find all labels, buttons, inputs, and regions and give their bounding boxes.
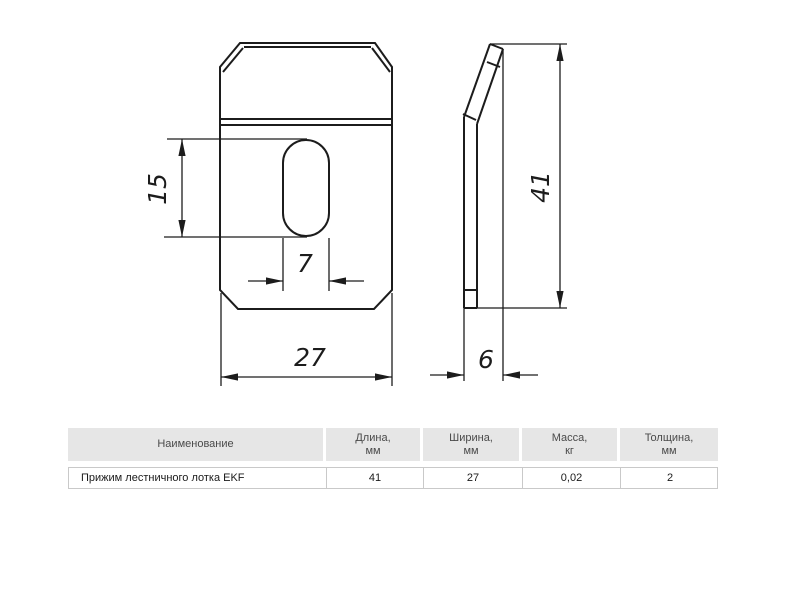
cell-mass: 0,02	[523, 468, 621, 488]
dimension-depth	[430, 49, 538, 381]
cell-length: 41	[327, 468, 424, 488]
slot	[283, 140, 329, 236]
technical-drawing: 15 7 27	[0, 0, 800, 420]
dim-label-7: 7	[297, 249, 313, 278]
spec-table-header: Наименование Длина, мм Ширина, мм Масса,…	[68, 428, 718, 461]
header-length: Длина, мм	[326, 428, 423, 461]
header-thickness: Толщина, мм	[620, 428, 718, 461]
page: 15 7 27	[0, 0, 800, 600]
header-mass: Масса, кг	[522, 428, 620, 461]
cell-thickness: 2	[621, 468, 719, 488]
side-view	[463, 44, 503, 308]
header-width: Ширина, мм	[423, 428, 522, 461]
spec-table: Наименование Длина, мм Ширина, мм Масса,…	[68, 428, 718, 489]
dim-label-41: 41	[526, 171, 555, 203]
dim-label-6: 6	[478, 345, 494, 374]
cell-product-name: Прижим лестничного лотка EKF	[69, 468, 327, 488]
dimension-width	[221, 293, 392, 386]
dim-label-15: 15	[143, 173, 172, 205]
dim-label-27: 27	[294, 343, 326, 372]
cell-width: 27	[424, 468, 523, 488]
header-name: Наименование	[68, 428, 326, 461]
table-row: Прижим лестничного лотка EKF 41 27 0,02 …	[68, 467, 718, 489]
